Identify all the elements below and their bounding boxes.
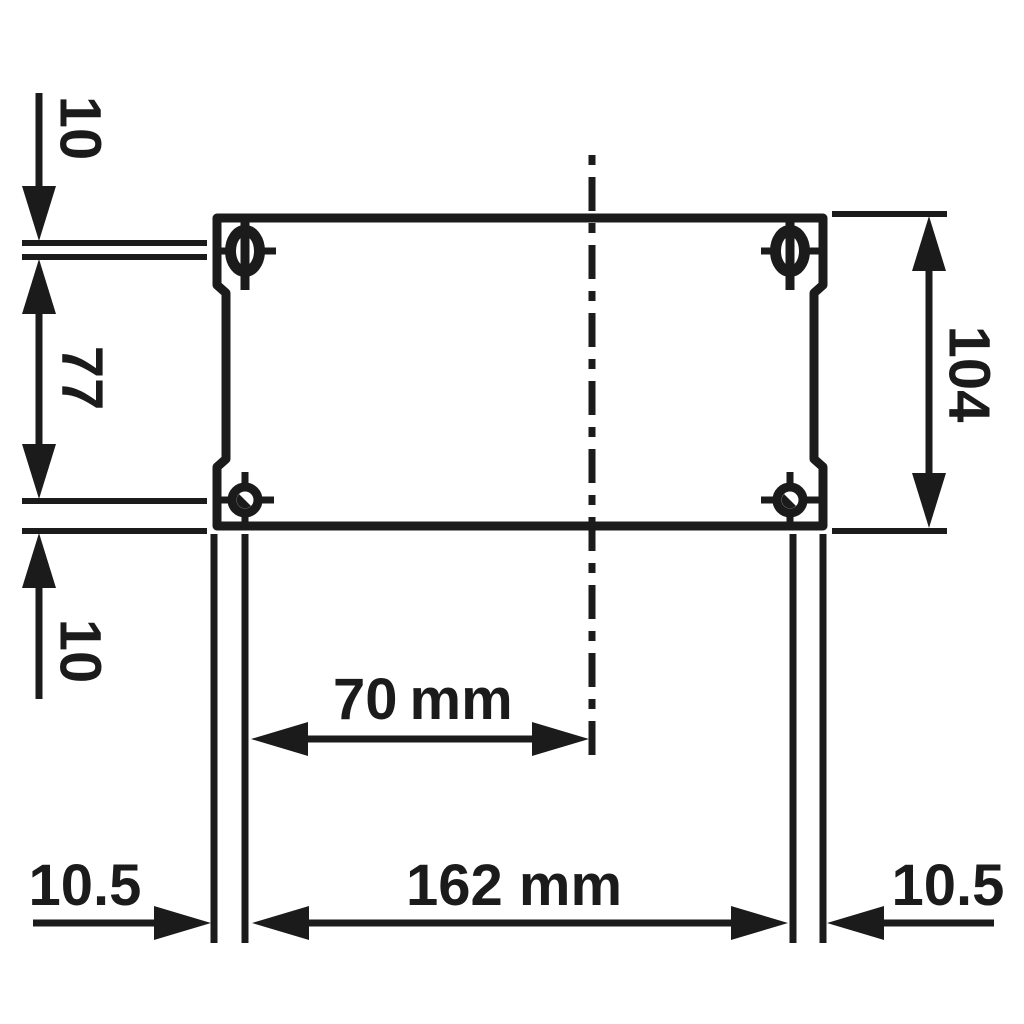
arrowhead-left <box>251 722 308 756</box>
arrowhead-left <box>252 906 309 940</box>
dimension-leg-spacing: 162 mm <box>252 853 788 940</box>
hole-bottom-left <box>216 472 274 528</box>
dimension-hole-to-center: 70mm <box>251 667 589 756</box>
dim-label-hole-to-center: 70mm <box>333 667 513 732</box>
dimension-left-leg-width: 10.5 <box>29 853 211 940</box>
dimension-overall-height: 104 <box>832 214 1002 531</box>
dimension-right-leg-width: 10.5 <box>827 853 1004 940</box>
arrowhead-right <box>731 906 788 940</box>
dimension-top-offset: 10 <box>22 93 113 241</box>
dim-label-overall-height: 104 <box>937 326 1002 423</box>
plate-outline <box>217 218 823 526</box>
dim-label-hole-spacing: 77 <box>50 346 115 411</box>
dimension-hole-spacing: 77 <box>22 259 115 499</box>
hole-top-right <box>761 218 821 290</box>
arrowhead-down <box>22 444 56 499</box>
dim-label-leg-spacing: 162 mm <box>406 853 622 918</box>
dim-value: 70 <box>333 667 398 732</box>
arrowhead-right <box>532 722 589 756</box>
dim-label-top-offset: 10 <box>48 96 113 161</box>
dimension-drawing: 10 77 10 104 70mm 162 mm 1 <box>0 0 1024 1024</box>
hole-bottom-right <box>761 472 819 528</box>
arrowhead-up <box>22 259 56 314</box>
arrowhead-down <box>912 473 946 528</box>
arrowhead-right <box>154 906 211 940</box>
dim-label-left-leg-width: 10.5 <box>29 853 142 918</box>
arrowhead-up <box>912 216 946 271</box>
right-leg <box>793 534 823 943</box>
left-leg <box>214 534 245 943</box>
hole-top-left <box>216 218 276 290</box>
dim-label-bottom-offset: 10 <box>48 619 113 684</box>
arrowhead-down <box>22 186 56 241</box>
dimension-bottom-offset: 10 <box>22 533 113 699</box>
dim-label-right-leg-width: 10.5 <box>892 853 1005 918</box>
drawing-canvas: 10 77 10 104 70mm 162 mm 1 <box>0 0 1024 1024</box>
arrowhead-left <box>827 906 884 940</box>
arrowhead-up <box>22 533 56 588</box>
dim-unit: mm <box>410 667 513 732</box>
